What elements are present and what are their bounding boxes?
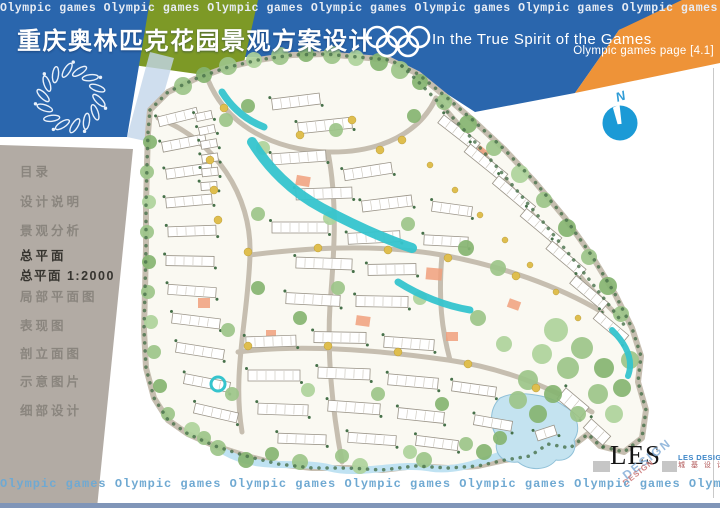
sidebar-item-detail-design[interactable]: 细部设计: [20, 400, 82, 419]
sidebar-item-landscape-analysis[interactable]: 景观分析: [20, 220, 82, 239]
logo-name-cn: 城 基 设 计: [678, 462, 720, 470]
sidebar-item-contents[interactable]: 目录: [20, 161, 51, 180]
olympic-rings-icon: [363, 20, 435, 64]
north-compass-icon: N: [594, 88, 648, 146]
bottom-olympic-ticker: Olympic games Olympic games Olympic game…: [0, 477, 720, 491]
logo-bar-right: [662, 461, 677, 472]
sidebar-item-partial-plans[interactable]: 局部平面图: [20, 286, 98, 305]
master-plan-line2: 总平面 1:2000: [20, 265, 115, 284]
logo-bar-left: [593, 461, 610, 472]
sidebar-item-renderings[interactable]: 表现图: [20, 315, 67, 334]
sidebar-item-master-plan[interactable]: 总平面 总平面 1:2000: [20, 245, 115, 284]
presentation-board: 目录 设计说明 景观分析 总平面 总平面 1:2000 局部平面图 表现图 剖立…: [0, 0, 720, 508]
page-number-label: Olympic games page [4.1]: [556, 45, 714, 57]
sidebar-item-reference-images[interactable]: 示意图片: [20, 371, 82, 390]
top-olympic-ticker: Olympic games Olympic games Olympic game…: [0, 2, 720, 15]
sidebar-item-sections[interactable]: 剖立面图: [20, 343, 82, 362]
sidebar-item-design-notes[interactable]: 设计说明: [20, 191, 82, 210]
svg-text:N: N: [614, 88, 628, 105]
page-title: 重庆奥林匹克花园景观方案设计: [17, 21, 374, 56]
bottom-blue-strip: [0, 503, 720, 508]
logo-name-en: LES DESIGN: [678, 453, 720, 462]
laurel-wreath-icon: [25, 50, 117, 146]
master-plan-line1: 总平面: [20, 249, 67, 263]
